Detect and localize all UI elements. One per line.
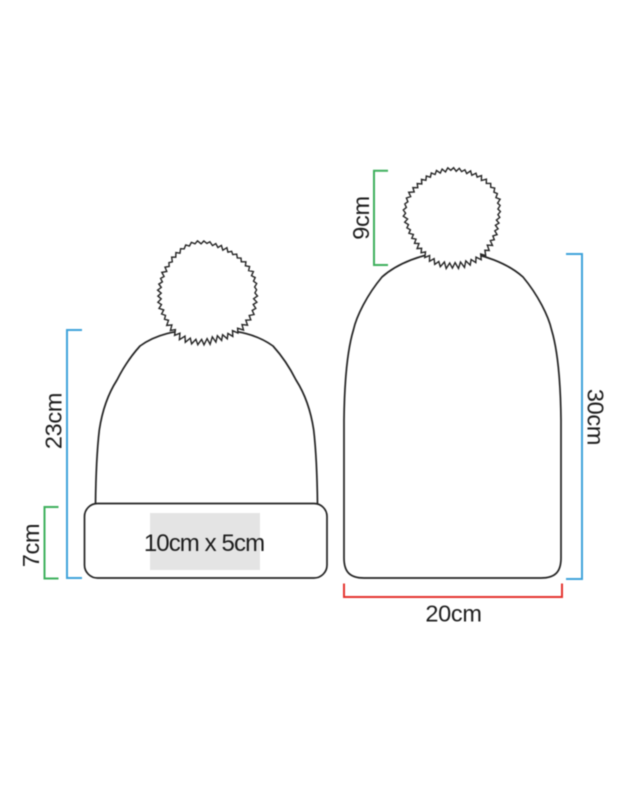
svg-text:23cm: 23cm: [41, 393, 67, 449]
svg-text:20cm: 20cm: [425, 601, 481, 627]
svg-text:30cm: 30cm: [583, 389, 609, 445]
svg-text:7cm: 7cm: [18, 524, 44, 568]
svg-text:10cm x 5cm: 10cm x 5cm: [144, 530, 264, 557]
svg-text:9cm: 9cm: [348, 196, 374, 240]
